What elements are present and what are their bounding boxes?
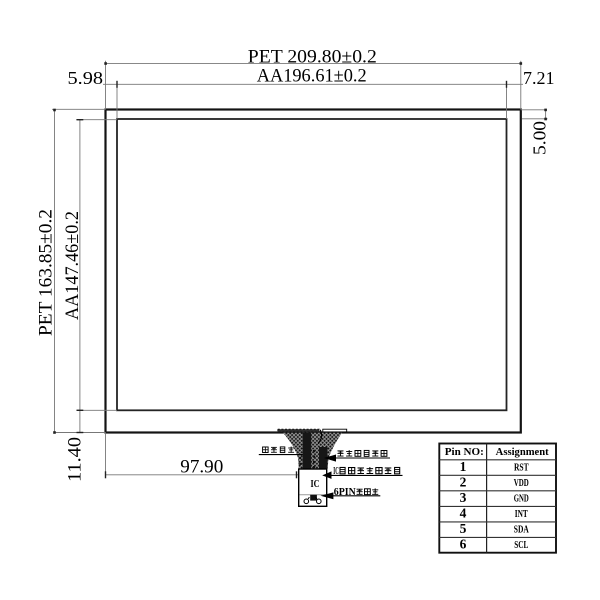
svg-text:5.00: 5.00 (530, 121, 550, 155)
svg-text:AA196.61±0.2: AA196.61±0.2 (257, 66, 367, 87)
svg-text:IC: IC (311, 479, 320, 490)
svg-text:Pin NO:: Pin NO: (445, 447, 484, 458)
svg-text:6PIN: 6PIN (334, 487, 357, 498)
svg-text:AA147.46±0.2: AA147.46±0.2 (62, 211, 83, 320)
svg-text:6: 6 (460, 536, 467, 551)
svg-text:Assignment: Assignment (496, 447, 549, 458)
svg-text:5: 5 (460, 521, 467, 536)
svg-text:2: 2 (460, 474, 467, 489)
svg-text:5.98: 5.98 (68, 68, 104, 88)
svg-text:INT: INT (515, 508, 528, 520)
svg-text:SDA: SDA (514, 523, 529, 535)
svg-text:VDD: VDD (514, 477, 529, 489)
svg-text:97.90: 97.90 (180, 457, 223, 478)
svg-text:RST: RST (514, 461, 529, 473)
svg-text:GND: GND (514, 492, 529, 504)
svg-text:SCL: SCL (514, 539, 528, 551)
svg-text:PET 209.80±0.2: PET 209.80±0.2 (248, 47, 377, 68)
svg-text:3: 3 (460, 490, 467, 505)
svg-text:11.40: 11.40 (65, 437, 86, 482)
svg-text:1: 1 (460, 459, 467, 474)
svg-text:4: 4 (460, 505, 467, 520)
svg-text:PET 163.85±0.2: PET 163.85±0.2 (36, 209, 57, 336)
svg-text:7.21: 7.21 (523, 68, 555, 88)
